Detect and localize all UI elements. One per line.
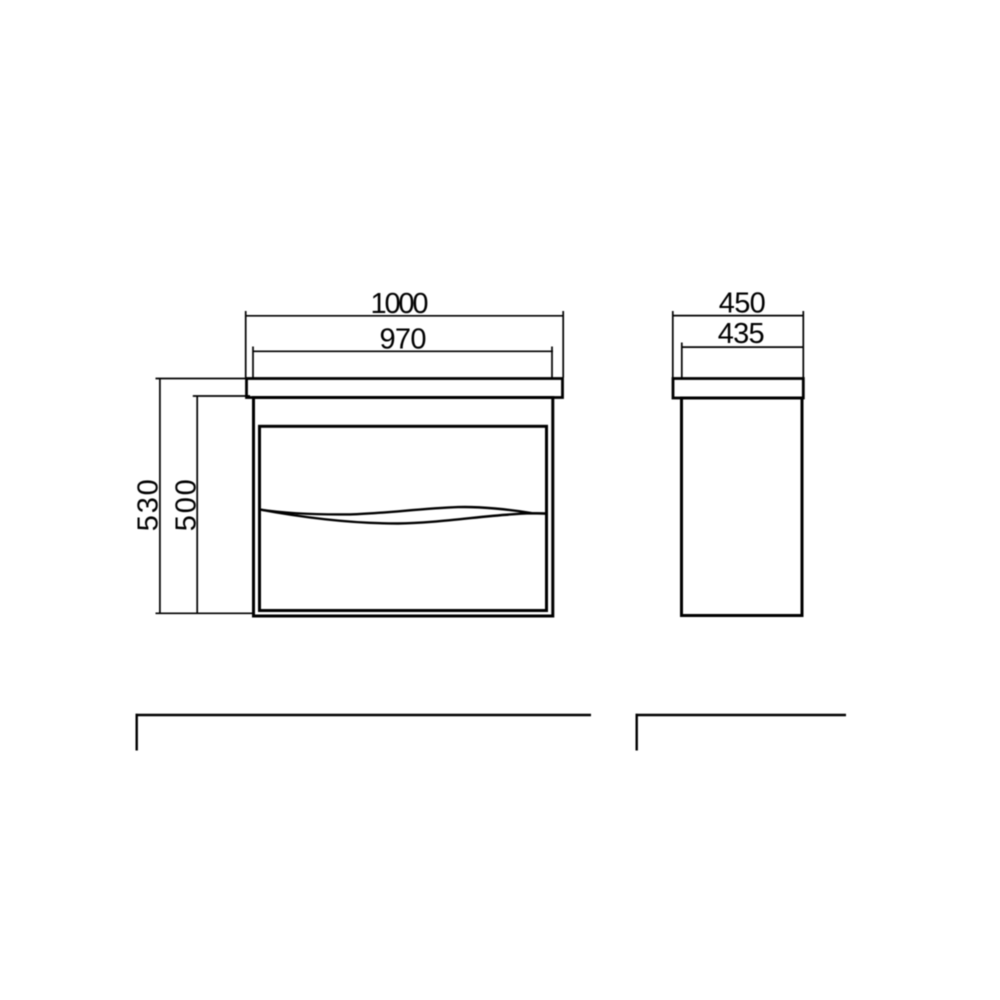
svg-text:970: 970 [380, 323, 427, 355]
svg-text:1000: 1000 [371, 288, 429, 320]
svg-text:450: 450 [719, 288, 766, 320]
svg-text:530: 530 [133, 479, 165, 531]
svg-text:435: 435 [718, 318, 765, 350]
svg-text:500: 500 [171, 479, 203, 531]
